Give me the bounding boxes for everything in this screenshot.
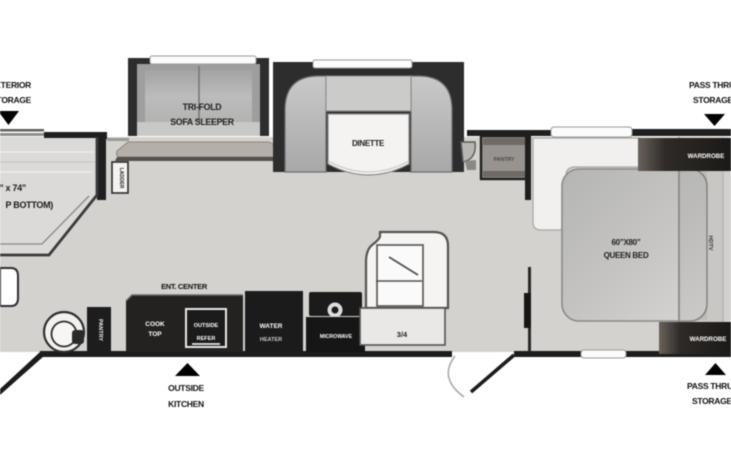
svg-text:HDTV: HDTV	[707, 236, 713, 251]
svg-text:MICROWAVE: MICROWAVE	[320, 334, 353, 340]
svg-text:PANTRY: PANTRY	[97, 319, 103, 341]
svg-text:HEATER: HEATER	[260, 337, 282, 343]
svg-text:PASS THRU: PASS THRU	[687, 381, 731, 391]
svg-text:EXTERIOR: EXTERIOR	[0, 80, 31, 90]
svg-text:LADDER: LADDER	[118, 168, 124, 189]
svg-text:” x 74”: ” x 74”	[0, 183, 26, 193]
svg-text:TOP: TOP	[148, 331, 162, 338]
svg-text:WARDROBE: WARDROBE	[688, 153, 725, 160]
svg-text:DINETTE: DINETTE	[352, 139, 385, 148]
svg-text:STORAGE: STORAGE	[692, 396, 731, 406]
svg-text:ENT. CENTER: ENT. CENTER	[161, 282, 208, 291]
svg-text:REFER: REFER	[197, 336, 216, 342]
svg-text:SOFA SLEEPER: SOFA SLEEPER	[170, 117, 234, 127]
svg-text:TRI-FOLD: TRI-FOLD	[183, 102, 222, 112]
svg-text:PASS THRU: PASS THRU	[689, 80, 731, 90]
svg-text:STORAGE: STORAGE	[0, 95, 32, 105]
svg-text:OUTSIDE: OUTSIDE	[168, 383, 204, 393]
svg-text:STORAGE: STORAGE	[693, 95, 731, 105]
svg-text:WARDROBE: WARDROBE	[690, 336, 727, 343]
svg-text:3/4: 3/4	[397, 330, 408, 339]
svg-text:OUTSIDE: OUTSIDE	[194, 323, 219, 329]
svg-text:P BOTTOM): P BOTTOM)	[6, 200, 54, 210]
svg-text:WATER: WATER	[260, 323, 283, 330]
svg-text:QUEEN BED: QUEEN BED	[604, 251, 649, 260]
svg-text:60”X80”: 60”X80”	[611, 238, 640, 247]
svg-text:KITCHEN: KITCHEN	[168, 399, 204, 409]
svg-text:COOK: COOK	[145, 321, 165, 328]
svg-text:PANTRY: PANTRY	[494, 157, 515, 163]
